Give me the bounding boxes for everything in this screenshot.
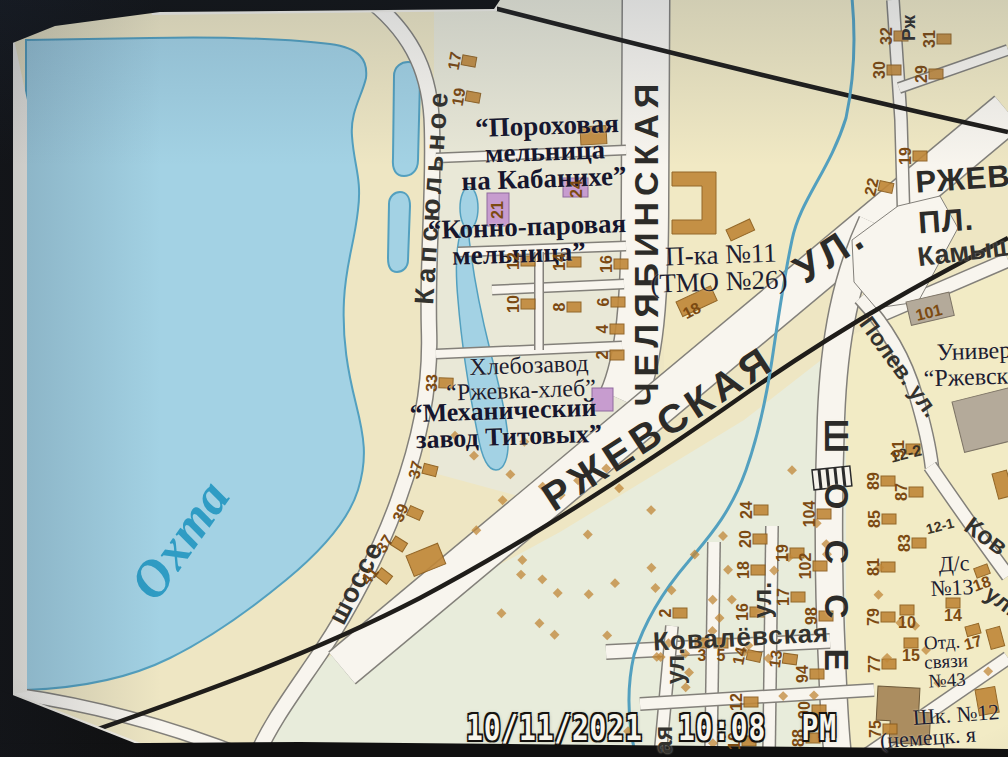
house-number: 14 xyxy=(552,253,568,271)
house-number: 30 xyxy=(872,61,888,79)
house-number: 18 xyxy=(680,300,703,322)
house-number: 4 xyxy=(595,325,611,334)
street-label: УЛ. xyxy=(787,214,874,290)
street-label: ПЛ. xyxy=(917,204,975,239)
street-label: Рж xyxy=(899,15,918,41)
annotation-label: (ТМО №26) xyxy=(650,266,788,298)
house-number: 24 xyxy=(569,180,585,198)
street-label: РЖЕВ xyxy=(914,160,1008,198)
house-number: 13 xyxy=(767,649,785,669)
house-number: 22 xyxy=(862,177,881,198)
house-number: 16 xyxy=(735,603,751,621)
house-number: 33 xyxy=(424,374,441,392)
house-number: 75 xyxy=(868,720,884,738)
street-label: ШОССЕ xyxy=(820,419,854,701)
annotation-label: “Ржевск xyxy=(923,364,1008,391)
house-number: 89 xyxy=(866,472,882,490)
house-number: 81 xyxy=(866,558,882,576)
house-number: 83 xyxy=(897,534,913,552)
house-number: 79 xyxy=(866,608,882,626)
house-number: 17 xyxy=(446,51,465,71)
house-number: 12 xyxy=(506,252,522,270)
house-number: 37 xyxy=(406,459,426,480)
house-number: 94 xyxy=(795,665,811,683)
annotation-label: (немецк. я xyxy=(879,724,976,753)
street-label: ул. xyxy=(663,648,688,684)
house-number: 2 xyxy=(658,609,674,618)
house-number: 102 xyxy=(798,553,814,580)
house-number: 29 xyxy=(914,65,930,83)
house-number: 10 xyxy=(898,615,916,631)
river-label: Охта xyxy=(121,471,239,608)
house-number: 77 xyxy=(867,655,883,673)
annotation-label: Универ xyxy=(936,338,1008,365)
house-number: 8 xyxy=(552,303,568,312)
house-number: 24 xyxy=(739,501,755,519)
street-label: ул. xyxy=(750,582,775,618)
street-label: Капсюльное xyxy=(411,87,453,305)
house-number: 6 xyxy=(596,298,612,307)
annotation-label: №13 xyxy=(930,576,974,600)
house-number: 91 xyxy=(891,440,907,458)
house-number: 5 xyxy=(717,648,726,664)
house-number: 19 xyxy=(898,147,914,165)
house-number: 2 xyxy=(595,351,611,360)
house-number: 14 xyxy=(944,608,962,624)
annotation-label: на Кабанихе” xyxy=(461,163,627,196)
map-photo: ЧЕЛЯБИНСКАЯРЖЕВСКАЯУЛ.ШОССЕРЖЕВПЛ.КамышП… xyxy=(0,0,1008,757)
annotation-label: завод Титовых” xyxy=(416,421,603,453)
house-number: 14 xyxy=(730,646,749,667)
annotation-label: №43 xyxy=(928,670,966,691)
house-number: 3 xyxy=(698,648,707,664)
house-number: 21 xyxy=(490,201,506,219)
house-number: 19 xyxy=(450,87,469,107)
house-number: 104 xyxy=(802,501,818,528)
house-number: 39 xyxy=(390,502,412,525)
street-label: ЧЕЛЯБИНСКАЯ xyxy=(629,78,663,407)
house-number: 10 xyxy=(506,295,522,313)
building-label: 12-1 xyxy=(925,516,956,536)
house-number: 31 xyxy=(922,30,938,48)
house-number: 15 xyxy=(902,648,920,664)
house-number: 101 xyxy=(914,302,944,324)
house-number: 18 xyxy=(736,561,752,579)
house-number: 16 xyxy=(599,255,615,273)
house-number: 85 xyxy=(867,510,883,528)
house-number: 87 xyxy=(894,483,910,501)
house-number: 17 xyxy=(776,588,792,606)
house-number: 20 xyxy=(738,530,754,548)
house-number: 19 xyxy=(775,544,791,562)
annotation-label: Д/с xyxy=(938,552,970,576)
house-number: 32 xyxy=(879,27,895,45)
map-labels: ЧЕЛЯБИНСКАЯРЖЕВСКАЯУЛ.ШОССЕРЖЕВПЛ.КамышП… xyxy=(0,0,1008,757)
camera-timestamp: 10/11/2021 10:08 PM xyxy=(466,708,837,748)
house-number: 98 xyxy=(804,607,820,625)
house-number: 17 xyxy=(962,633,983,653)
